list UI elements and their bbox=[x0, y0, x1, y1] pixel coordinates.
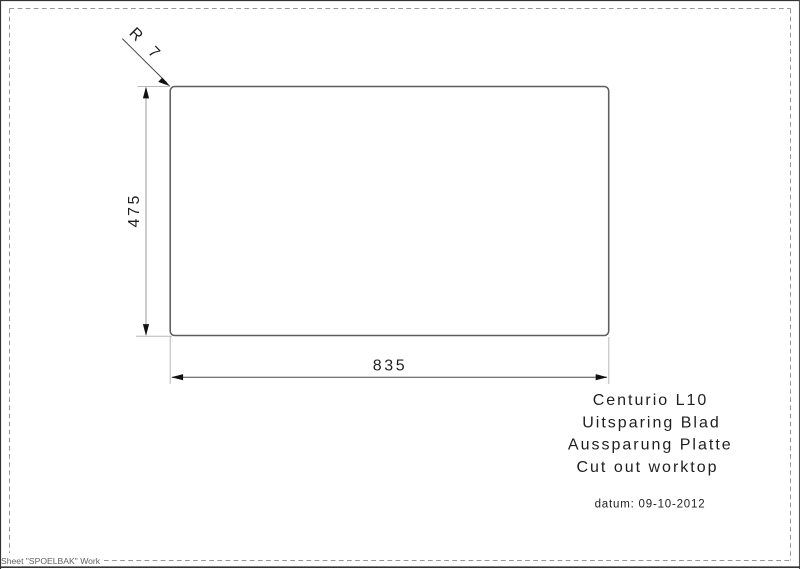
svg-text:475: 475 bbox=[126, 193, 143, 228]
svg-text:datum: 09-10-2012: datum: 09-10-2012 bbox=[595, 499, 706, 511]
svg-text:Centurio L10: Centurio L10 bbox=[593, 392, 709, 409]
svg-text:835: 835 bbox=[373, 358, 408, 375]
svg-text:Cut out worktop: Cut out worktop bbox=[576, 459, 718, 476]
svg-text:Uitsparing Blad: Uitsparing Blad bbox=[582, 414, 721, 431]
svg-text:Aussparung Platte: Aussparung Platte bbox=[568, 437, 733, 454]
svg-text:Sheet "SPOELBAK" Work: Sheet "SPOELBAK" Work bbox=[1, 556, 101, 566]
